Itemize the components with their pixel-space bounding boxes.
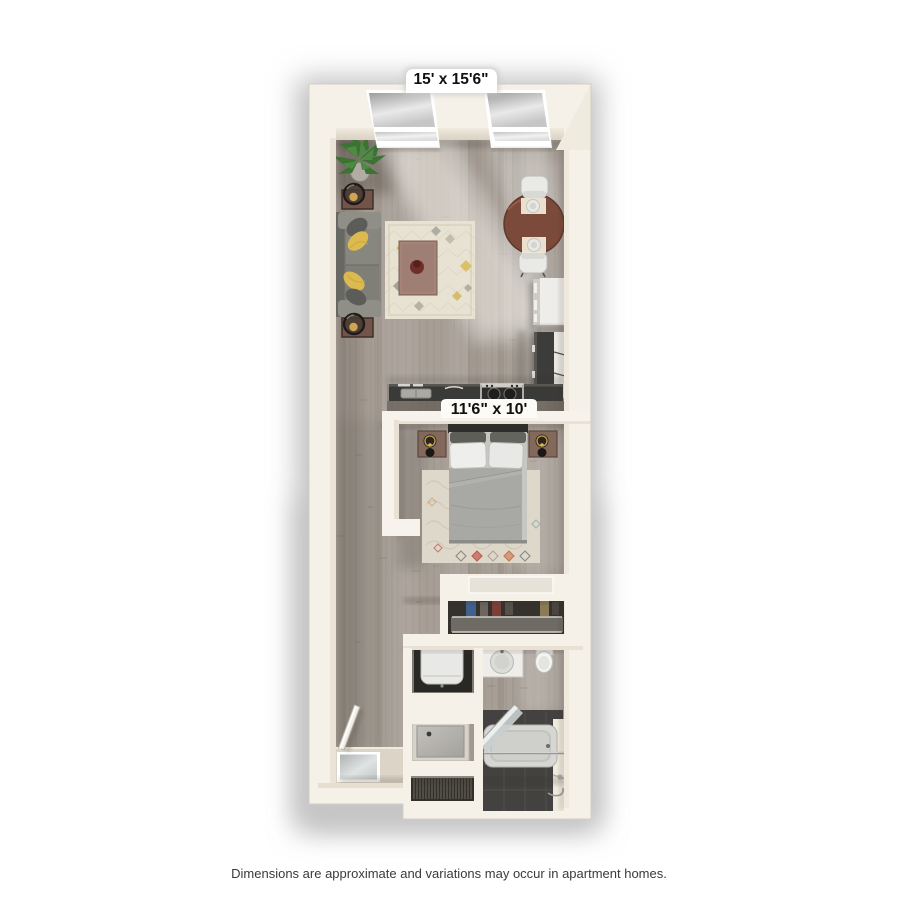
svg-text:Dimensions are approximate and: Dimensions are approximate and variation… xyxy=(231,866,667,881)
svg-text:15' x 15'6": 15' x 15'6" xyxy=(413,71,488,88)
svg-text:11'6" x 10': 11'6" x 10' xyxy=(451,401,528,418)
